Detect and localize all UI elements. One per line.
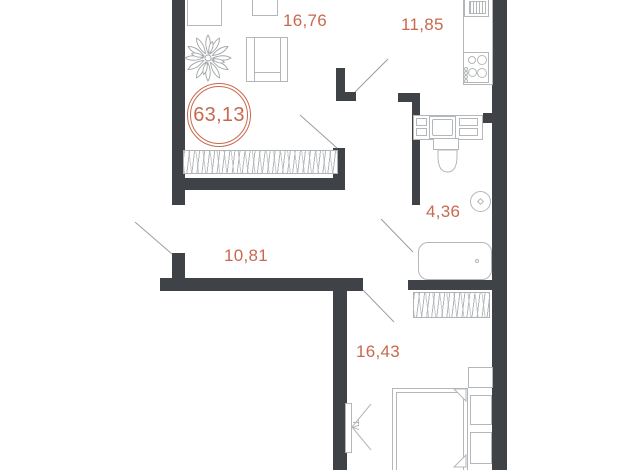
living-door-swing (300, 115, 337, 148)
bedroom-door-swing (363, 290, 394, 322)
bed-fold-icons (454, 389, 466, 467)
floor-plan: 63,13 16,76 11,85 4,36 10,81 TV 16,43 (0, 0, 644, 470)
door-swing-lines (135, 59, 413, 322)
bed-fold-bottom-icon (454, 455, 466, 467)
toilet-bowl (438, 150, 457, 172)
tv-viewing-angle-lines (352, 404, 371, 450)
plant-icon (185, 35, 231, 81)
bed-fold-top-icon (454, 389, 466, 401)
bathroom-door-swing (381, 219, 413, 252)
plan-line-overlay (0, 0, 644, 470)
kitchen-door-swing (355, 59, 388, 92)
entrance-door-swing (135, 222, 172, 254)
